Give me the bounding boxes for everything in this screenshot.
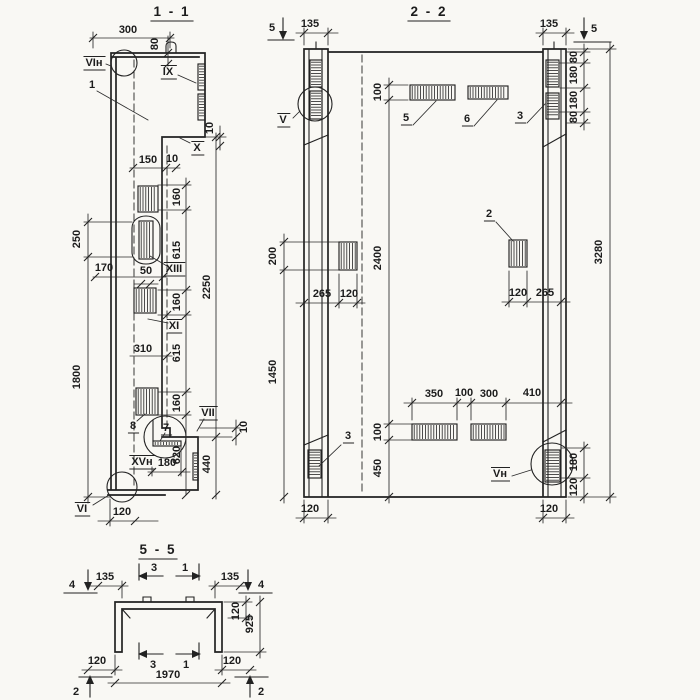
dim-120-right: 120 (509, 287, 527, 299)
hatch-lines (341, 243, 355, 269)
dim-300: 300 (480, 388, 498, 400)
cut-marker-1-bottom: 1 (176, 643, 201, 671)
view-label-vii: VII (201, 407, 214, 419)
hatch-lines (311, 62, 321, 84)
dim-160-b: 160 (171, 293, 183, 311)
lifting-loop (166, 42, 176, 53)
hatch-lines (155, 442, 177, 445)
dim-440: 440 (201, 455, 213, 473)
view-label-ix: IX (163, 66, 174, 78)
member-outline (108, 53, 205, 495)
dim-170: 170 (95, 262, 113, 274)
part-label-3-top: 3 (517, 110, 523, 122)
slot-oval (132, 216, 160, 264)
hatch-lines (138, 389, 155, 414)
cut-marker-4-left-label: 4 (69, 579, 76, 591)
dim-265-right: 265 (536, 287, 554, 299)
hatch-lines (511, 241, 525, 266)
blueprint-sheet: 1 - 1 300 80 10 150 10 160 615 1 (0, 0, 700, 700)
dim-100-top: 100 (372, 83, 384, 101)
hatch-lines (470, 87, 504, 98)
plate-2 (509, 240, 527, 267)
dim-120-bottom-right: 120 (223, 655, 241, 667)
detail-7-bar (153, 441, 181, 446)
dim-10: 10 (166, 153, 178, 165)
cut-marker-3-bottom: 3 (138, 643, 163, 671)
cut-marker-2-right-label: 2 (258, 686, 264, 698)
cut-marker-4-right: 4 (239, 570, 272, 593)
section-5-5-title: 5 - 5 (139, 542, 176, 557)
dim-120-depth: 120 (230, 602, 242, 620)
dim-265-left: 265 (313, 288, 331, 300)
view-label-v-n: Vн (493, 468, 507, 480)
channel-outline (115, 602, 222, 652)
dim-80-b: 80 (568, 111, 580, 123)
dim-10-top: 10 (204, 122, 216, 134)
section-2-2: 2 - 2 5 (267, 4, 616, 523)
part-label-8: 8 (130, 420, 136, 432)
dim-120-bottom-right: 120 (540, 503, 558, 515)
dim-120-bottom-left: 120 (301, 503, 319, 515)
dim-1450: 1450 (267, 360, 279, 384)
hatch-lines (547, 62, 558, 84)
dim-615-b: 615 (171, 344, 183, 362)
dim-135-right: 135 (540, 18, 558, 30)
cut-marker-1-top-label: 1 (182, 562, 188, 574)
rib-plate-tl-b (310, 91, 322, 119)
dim-1970: 1970 (156, 669, 180, 681)
dim-160-c: 160 (171, 394, 183, 412)
cut-marker-5-left-label: 5 (269, 22, 275, 34)
plate-a (138, 186, 158, 212)
dim-80: 80 (149, 38, 161, 50)
dim-135-left: 135 (96, 571, 114, 583)
section-1-1-title: 1 - 1 (153, 4, 190, 19)
view-label-xi: XI (169, 320, 179, 332)
dim-100-mid: 100 (455, 387, 473, 399)
hatch-lines (140, 187, 154, 211)
cut-marker-4-right-label: 4 (258, 579, 265, 591)
dim-3280: 3280 (593, 240, 605, 264)
cut-marker-2-left: 2 (73, 675, 112, 698)
dim-135-left: 135 (301, 18, 319, 30)
detail-circle-vi-n (111, 50, 137, 76)
cut-marker-3-top: 3 (138, 562, 163, 580)
dim-925: 925 (244, 615, 256, 633)
corner-gussets (122, 597, 215, 618)
hatch-lines (199, 66, 204, 86)
cut-marker-5-right-label: 5 (591, 23, 597, 35)
dim-100-bot: 100 (372, 423, 384, 441)
dim-2400: 2400 (372, 246, 384, 270)
plate-6 (468, 86, 508, 99)
dim-120-br: 120 (568, 478, 580, 496)
leader-lines-1-1 (93, 64, 204, 505)
dim-120-bottom-left: 120 (88, 655, 106, 667)
dim-250: 250 (71, 230, 83, 248)
dim-300: 300 (119, 24, 137, 36)
dim-180-b: 180 (568, 91, 580, 109)
dim-350: 350 (425, 388, 443, 400)
dim-160-a: 160 (171, 188, 183, 206)
view-label-xv-n: XVн (131, 456, 152, 468)
hatch-lines (194, 455, 197, 477)
part-label-5: 5 (403, 112, 409, 124)
part-label-3-bottom: 3 (345, 430, 351, 442)
part-label-1: 1 (89, 79, 95, 91)
dim-120-left: 120 (340, 288, 358, 300)
hatch-lines (199, 96, 204, 116)
section-5-5: 5 - 5 4 4 3 1 3 (64, 542, 272, 698)
dim-450: 450 (372, 459, 384, 477)
dim-10-bot: 10 (238, 421, 250, 433)
view-label-v: V (279, 114, 287, 126)
plate-mid-left (339, 242, 357, 270)
dim-200: 200 (267, 247, 279, 265)
dim-50: 50 (140, 265, 152, 277)
view-label-x: X (193, 142, 201, 154)
part-label-7: 7 (163, 422, 169, 434)
hatch-lines (309, 452, 320, 474)
dim-615-a: 615 (171, 241, 183, 259)
hatch-lines (473, 425, 504, 439)
rib-plate-bl (308, 450, 321, 478)
cut-marker-4-left: 4 (64, 570, 97, 593)
dim-410: 410 (523, 387, 541, 399)
hatch-lines (412, 86, 451, 99)
cut-marker-1-top: 1 (176, 562, 201, 580)
cut-marker-5-right: 5 (574, 18, 611, 42)
dim-150: 150 (139, 154, 157, 166)
view-label-vi-n: VIн (85, 57, 102, 69)
dim-310: 310 (134, 343, 152, 355)
dim-lines-5-5 (82, 581, 266, 683)
cut-marker-1-bottom-label: 1 (183, 659, 189, 671)
part-label-2: 2 (486, 208, 492, 220)
dim-120: 120 (113, 506, 131, 518)
dim-180-a: 180 (568, 66, 580, 84)
cut-marker-2-left-label: 2 (73, 686, 79, 698)
hatch-lines (311, 93, 321, 115)
section-2-2-title: 2 - 2 (410, 4, 447, 19)
section-1-1: 1 - 1 300 80 10 150 10 160 615 1 (71, 4, 250, 526)
dim-180-br: 180 (568, 453, 580, 471)
dim-2250: 2250 (201, 275, 213, 299)
hatch-lines (141, 222, 149, 258)
view-label-xiii: XIII (166, 263, 183, 275)
hatch-lines (136, 289, 153, 312)
cut-marker-5-left: 5 (268, 18, 294, 40)
cut-marker-2-right: 2 (235, 675, 268, 698)
blueprint-canvas: 1 - 1 300 80 10 150 10 160 615 1 (0, 0, 700, 700)
part-label-6: 6 (464, 113, 470, 125)
dim-180: 180 (158, 457, 176, 469)
view-label-vi: VI (77, 503, 87, 515)
cut-marker-3-top-label: 3 (151, 562, 157, 574)
hatch-lines (414, 425, 453, 439)
hatch-lines (547, 95, 558, 115)
dim-1800: 1800 (71, 365, 83, 389)
dim-80-a: 80 (568, 51, 580, 63)
dim-135-right: 135 (221, 571, 239, 583)
